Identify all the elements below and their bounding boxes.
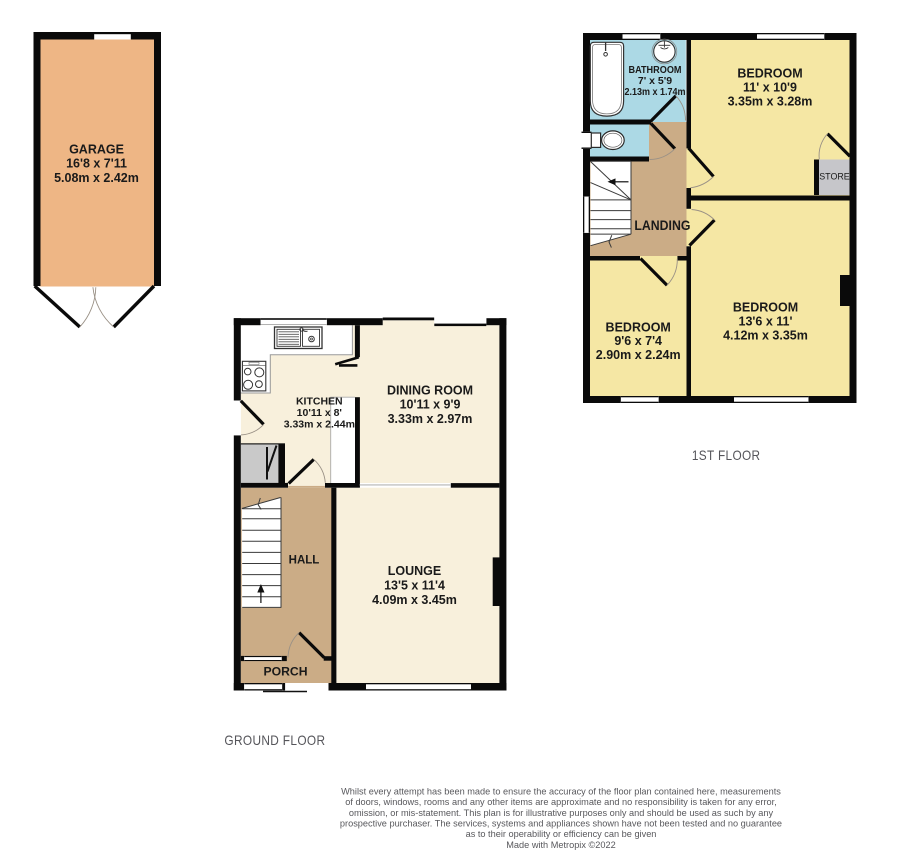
svg-text:STORE: STORE [819, 171, 850, 181]
svg-text:BATHROOM: BATHROOM [629, 64, 682, 76]
svg-text:Whilst every attempt has been: Whilst every attempt has been made to en… [341, 786, 781, 796]
svg-text:BEDROOM: BEDROOM [733, 301, 798, 315]
svg-text:DINING ROOM: DINING ROOM [387, 383, 473, 397]
svg-text:GROUND FLOOR: GROUND FLOOR [224, 732, 325, 748]
svg-text:omission, or mis-statement. Th: omission, or mis-statement. This plan is… [349, 808, 774, 818]
svg-text:3.33m x 2.44m: 3.33m x 2.44m [284, 419, 355, 431]
svg-text:1ST FLOOR: 1ST FLOOR [692, 447, 761, 463]
svg-text:10'11 x 9'9: 10'11 x 9'9 [400, 398, 461, 412]
svg-text:3.33m x 2.97m: 3.33m x 2.97m [388, 412, 473, 426]
svg-text:11' x 10'9: 11' x 10'9 [743, 81, 797, 95]
svg-text:13'5 x 11'4: 13'5 x 11'4 [384, 579, 445, 593]
svg-text:5.08m x 2.42m: 5.08m x 2.42m [54, 171, 139, 185]
svg-text:prospective purchaser. The ser: prospective purchaser. The services, sys… [340, 819, 782, 829]
svg-text:LOUNGE: LOUNGE [388, 564, 441, 578]
svg-text:BEDROOM: BEDROOM [606, 321, 671, 335]
svg-text:4.12m x 3.35m: 4.12m x 3.35m [723, 329, 808, 343]
svg-text:LANDING: LANDING [634, 218, 690, 233]
svg-text:GARAGE: GARAGE [69, 143, 124, 157]
svg-text:13'6 x 11': 13'6 x 11' [739, 315, 793, 329]
svg-text:2.90m x 2.24m: 2.90m x 2.24m [596, 348, 681, 362]
svg-text:9'6 x 7'4: 9'6 x 7'4 [614, 334, 662, 348]
svg-text:PORCH: PORCH [264, 666, 308, 678]
svg-text:HALL: HALL [289, 555, 320, 567]
svg-text:as to their operability or eff: as to their operability or efficiency ca… [466, 829, 657, 839]
svg-text:4.09m x 3.45m: 4.09m x 3.45m [372, 593, 457, 607]
svg-text:of doors, windows, rooms and a: of doors, windows, rooms and any other i… [345, 797, 777, 807]
svg-text:3.35m x 3.28m: 3.35m x 3.28m [728, 95, 813, 109]
svg-text:2.13m x 1.74m: 2.13m x 1.74m [625, 86, 686, 98]
svg-text:16'8 x 7'11: 16'8 x 7'11 [66, 156, 127, 170]
svg-text:BEDROOM: BEDROOM [737, 67, 802, 81]
svg-text:Made with Metropix ©2022: Made with Metropix ©2022 [506, 840, 615, 850]
svg-text:10'11 x 8': 10'11 x 8' [297, 407, 342, 419]
